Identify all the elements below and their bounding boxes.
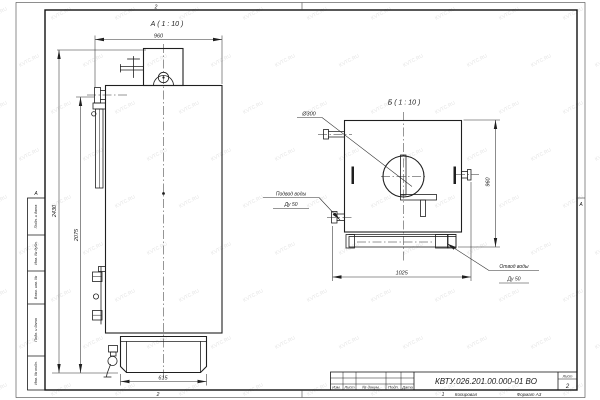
zone-number-top: 2 [154,4,158,10]
watermark-text: KVTC.RU [0,288,9,304]
watermark-text: KVTC.RU [0,194,9,210]
watermark-text: KVTC.RU [562,6,585,22]
watermark-text: KVTC.RU [434,194,457,210]
watermark-text: KVTC.RU [0,6,9,22]
dim-2430: 2430 [52,50,146,373]
watermark-text: KVTC.RU [18,53,41,69]
header-list: Лист [343,385,355,390]
technical-drawing: KVTC.RUKVTC.RUKVTC.RUKVTC.RUKVTC.RUKVTC.… [0,0,600,400]
note-outlet-line1: Отвод воды [499,264,529,270]
note-inlet-line2: Ду 50 [283,202,297,208]
watermark-text: KVTC.RU [498,6,521,22]
watermark-text: KVTC.RU [370,6,393,22]
drain-valve [104,346,118,378]
watermark-layer: KVTC.RUKVTC.RUKVTC.RUKVTC.RUKVTC.RUKVTC.… [0,6,600,398]
watermark-text: KVTC.RU [562,288,585,304]
watermark-text: KVTC.RU [242,194,265,210]
zone-letter-left: А [33,191,38,197]
dim-615-label: 615 [158,376,168,382]
watermark-text: KVTC.RU [82,53,105,69]
watermark-text: KVTC.RU [306,288,329,304]
watermark-text: KVTC.RU [242,288,265,304]
watermark-text: KVTC.RU [242,100,265,116]
watermark-text: KVTC.RU [594,147,600,163]
watermark-text: KVTC.RU [146,147,169,163]
watermark-text: KVTC.RU [402,53,425,69]
dim-2075-label: 2075 [74,228,80,242]
stamp-col-podp-data-2: Подп. и дата [34,318,38,342]
watermark-text: KVTC.RU [50,100,73,116]
watermark-text: KVTC.RU [0,100,9,116]
title-block: Изм. Лист № докум. Подп. Дата КВТУ.026.2… [331,372,578,397]
watermark-text: KVTC.RU [434,288,457,304]
watermark-text: KVTC.RU [338,53,361,69]
sheet-label: Лист [562,374,573,378]
watermark-text: KVTC.RU [178,6,201,22]
view-a-title: А ( 1 : 10 ) [150,21,184,28]
dim-960-top-label: 960 [154,34,164,40]
watermark-text: KVTC.RU [114,100,137,116]
header-podp: Подп. [388,385,399,390]
watermark-text: KVTC.RU [114,288,137,304]
watermark-text: KVTC.RU [210,147,233,163]
watermark-text: KVTC.RU [466,335,489,351]
watermark-text: KVTC.RU [402,241,425,257]
stamp-col-podp-data-1: Подп. и дата [34,205,38,229]
watermark-text: KVTC.RU [370,194,393,210]
burner-bracket [121,57,144,78]
watermark-text: KVTC.RU [530,241,553,257]
watermark-text: KVTC.RU [498,100,521,116]
note-outlet-line2: Ду 50 [506,277,520,283]
watermark-text: KVTC.RU [530,335,553,351]
watermark-text: KVTC.RU [434,6,457,22]
watermark-text: KVTC.RU [306,194,329,210]
watermark-text: KVTC.RU [466,53,489,69]
pipe-stub-top-left [87,88,128,104]
pipe-stub-upper-left [318,130,352,140]
watermark-text: KVTC.RU [210,241,233,257]
watermark-text: KVTC.RU [178,100,201,116]
watermark-text: KVTC.RU [178,288,201,304]
dim-1025-label: 1025 [396,271,409,277]
watermark-text: KVTC.RU [18,147,41,163]
watermark-text: KVTC.RU [210,53,233,69]
watermark-text: KVTC.RU [530,147,553,163]
watermark-text: KVTC.RU [370,288,393,304]
watermark-text: KVTC.RU [82,147,105,163]
watermark-text: KVTC.RU [210,335,233,351]
watermark-text: KVTC.RU [146,335,169,351]
watermark-text: KVTC.RU [114,194,137,210]
watermark-text: KVTC.RU [466,147,489,163]
door-hinges [93,267,106,325]
vent-slot-right [454,167,457,185]
watermark-text: KVTC.RU [306,6,329,22]
stamp-side-columns: Подп. и дата Инв. № дубл. Взам. инв. № П… [28,198,46,390]
watermark-text: KVTC.RU [242,6,265,22]
level-gauge [92,103,106,188]
watermark-text: KVTC.RU [146,241,169,257]
dim-960-right: 960 [458,120,500,247]
view-b: Б ( 1 : 10 ) [263,100,539,284]
watermark-text: KVTC.RU [82,335,105,351]
watermark-text: KVTC.RU [594,335,600,351]
watermark-text: KVTC.RU [114,6,137,22]
zone-number-bottom: 2 [156,392,160,398]
dim-diameter-label: Ø300 [301,112,316,118]
base-channel-side [346,235,456,249]
copied-label: Копировал [455,392,478,397]
note-inlet-line1: Подвод воды [276,192,307,198]
format-label: Формат А3 [517,392,542,397]
watermark-text: KVTC.RU [338,147,361,163]
watermark-text: KVTC.RU [146,53,169,69]
door-handle [401,155,437,217]
dim-2075: 2075 [74,97,94,373]
header-data: Дата [401,385,413,390]
stamp-col-vzam-inv: Взам. инв. № [34,276,38,299]
watermark-text: KVTC.RU [274,147,297,163]
watermark-text: KVTC.RU [50,6,73,22]
header-izm: Изм. [332,385,341,390]
watermark-text: KVTC.RU [0,382,9,398]
watermark-text: KVTC.RU [594,241,600,257]
watermark-text: KVTC.RU [82,241,105,257]
watermark-text: KVTC.RU [178,194,201,210]
watermark-text: KVTC.RU [498,288,521,304]
vent-slot-left [352,167,355,185]
watermark-text: KVTC.RU [594,53,600,69]
watermark-text: KVTC.RU [50,288,73,304]
view-a: А ( 1 : 10 ) [52,21,222,386]
note-inlet: Подвод воды Ду 50 [263,192,340,221]
stamp-col-inv-podl: Инв. № подл. [34,361,38,385]
watermark-text: KVTC.RU [274,335,297,351]
watermark-text: KVTC.RU [530,53,553,69]
sheet-number: 2 [565,384,570,390]
zone-number-bottom-right: 1 [442,392,445,398]
watermark-text: KVTC.RU [434,100,457,116]
watermark-text: KVTC.RU [274,241,297,257]
watermark-text: KVTC.RU [498,194,521,210]
view-b-title: Б ( 1 : 10 ) [388,100,421,107]
watermark-text: KVTC.RU [466,241,489,257]
dim-2430-label: 2430 [52,204,58,218]
watermark-text: KVTC.RU [402,335,425,351]
dim-960-right-label: 960 [486,176,492,186]
inlet-pipe [327,212,354,224]
document-number: КВТУ.026.201.00.000-01 ВО [435,377,537,386]
pipe-stub-right [456,170,479,181]
header-doc: № докум. [362,385,380,390]
watermark-text: KVTC.RU [338,335,361,351]
watermark-text: KVTC.RU [562,100,585,116]
zone-letter-right: А [578,202,583,208]
stamp-col-inv-dubl: Инв. № дубл. [34,241,38,264]
drawing-sheet: KVTC.RUKVTC.RUKVTC.RUKVTC.RUKVTC.RUKVTC.… [0,0,600,400]
watermark-text: KVTC.RU [274,53,297,69]
